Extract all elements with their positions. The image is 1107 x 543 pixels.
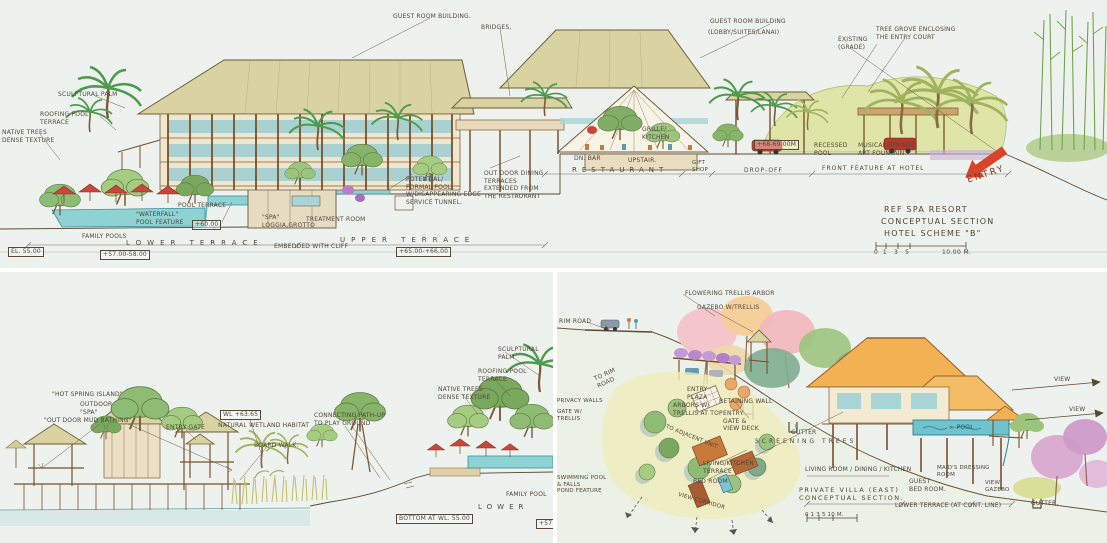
title-line1: REF SPA RESORT [884, 205, 968, 214]
title-line2: CONCEPTUAL SECTION [881, 217, 994, 226]
hotel-section-panel: GUEST ROOM BUILDING.BRIDGES,GUEST ROOM B… [0, 0, 1107, 268]
scale-label: 10.00 M. [942, 249, 971, 256]
private-villa-panel: RIM ROADFLOWERING TRELLIS ARBORGAZEBO W/… [557, 272, 1107, 543]
reeds [232, 471, 327, 504]
ground-line [310, 472, 553, 506]
bamboo-cluster [1026, 10, 1107, 162]
hotel-section-drawing [0, 0, 1107, 268]
scale-ticks-label: 0 1 3 5 [874, 249, 909, 256]
boardwalk [14, 484, 250, 510]
wetland-water [0, 510, 310, 526]
title-line3: HOTEL SCHEME "B" [884, 229, 982, 238]
family-pools [52, 188, 390, 227]
hot-spring-island-panel: "HOT SPRING ISLAND"OUTDOOR "SPA""OUT DOO… [0, 272, 553, 543]
hot-spring-island-drawing [0, 272, 553, 543]
resort-concept-drawing: GUEST ROOM BUILDING.BRIDGES,GUEST ROOM B… [0, 0, 1107, 543]
infinity-pool [913, 420, 1009, 466]
private-villa-drawing [557, 272, 1107, 543]
accent-trees [1010, 413, 1107, 506]
family-pool-area [427, 439, 553, 476]
